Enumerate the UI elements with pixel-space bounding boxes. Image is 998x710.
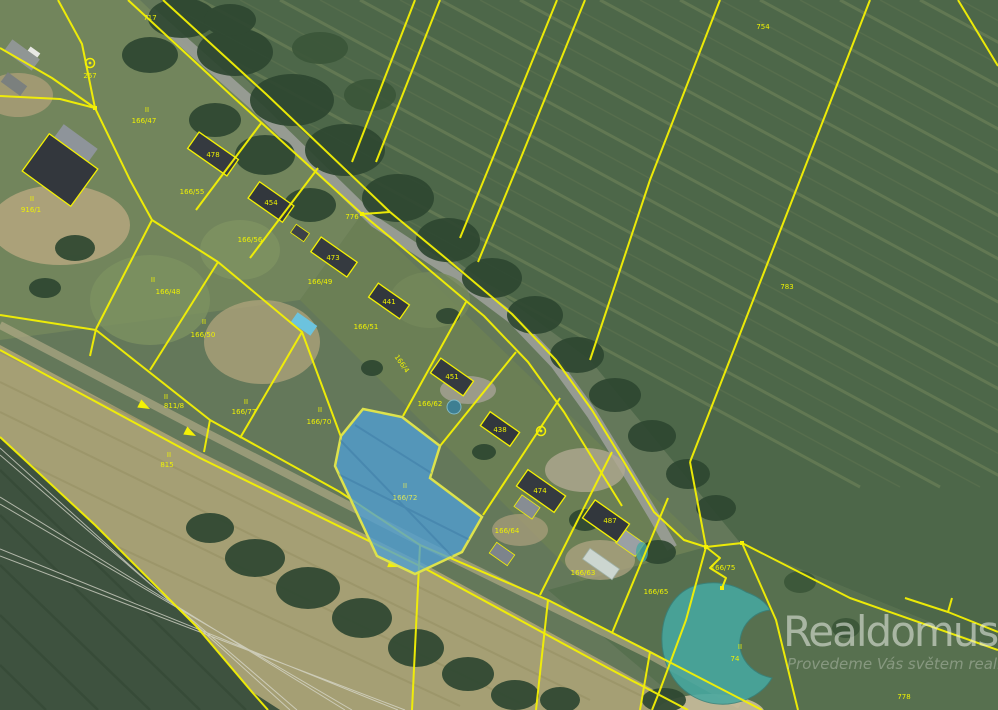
parcel-label: II bbox=[167, 451, 171, 459]
parcel-label: 811/8 bbox=[164, 402, 184, 410]
parcel-label: II bbox=[202, 318, 206, 326]
highlight-parcel-marker: II bbox=[403, 482, 407, 490]
parcel-label: 166/62 bbox=[418, 400, 443, 408]
parcel-label: 166/65 bbox=[644, 588, 669, 596]
house-label: 487 bbox=[603, 517, 616, 525]
map-viewport[interactable]: II 166/72 717 267 II 166/47 478 166/55 I… bbox=[0, 0, 998, 710]
house-label: 478 bbox=[206, 151, 219, 159]
parcel-label: II bbox=[145, 106, 149, 114]
highlight-parcel-number: 166/72 bbox=[393, 494, 418, 502]
house-label: 451 bbox=[445, 373, 458, 381]
parcel-label: 778 bbox=[897, 693, 910, 701]
map-canvas: II 166/72 717 267 II 166/47 478 166/55 I… bbox=[0, 0, 998, 710]
parcel-label: II bbox=[151, 276, 155, 284]
parcel-label: 166/70 bbox=[307, 418, 332, 426]
parcel-label: 916/1 bbox=[21, 206, 41, 214]
parcel-label: 166/50 bbox=[191, 331, 216, 339]
parcel-label: 815 bbox=[160, 461, 173, 469]
parcel-label: 166/55 bbox=[180, 188, 205, 196]
parcel-label: II bbox=[244, 398, 248, 406]
pool-round bbox=[447, 400, 461, 414]
parcel-label: II bbox=[318, 406, 322, 414]
parcel-label: 166/64 bbox=[495, 527, 520, 535]
parcel-label: 166/77 bbox=[232, 408, 257, 416]
parcel-label: 267 bbox=[83, 72, 96, 80]
parcel-label: 166/56 bbox=[238, 236, 263, 244]
parcel-label: 166/75 bbox=[711, 564, 736, 572]
aerial-imagery bbox=[0, 0, 998, 710]
parcel-label: 754 bbox=[756, 23, 770, 31]
parcel-label: 717 bbox=[143, 14, 156, 22]
parcel-label: 74 bbox=[731, 655, 740, 663]
parcel-label: 166/63 bbox=[571, 569, 596, 577]
parcel-label: 776 bbox=[345, 213, 359, 221]
house-label: 438 bbox=[493, 426, 506, 434]
parcel-label: 166/51 bbox=[354, 323, 379, 331]
parcel-label: 166/47 bbox=[132, 117, 157, 125]
parcel-label: 783 bbox=[780, 283, 793, 291]
parcel-label: 166/49 bbox=[308, 278, 333, 286]
parcel-label: 166/48 bbox=[156, 288, 181, 296]
house-label: 474 bbox=[533, 487, 547, 495]
house-label: 441 bbox=[382, 298, 395, 306]
parcel-label: II bbox=[164, 393, 168, 401]
house-label: 473 bbox=[326, 254, 339, 262]
parcel-label: II bbox=[738, 643, 742, 651]
house-label: 454 bbox=[264, 199, 278, 207]
parcel-label: II bbox=[30, 195, 34, 203]
